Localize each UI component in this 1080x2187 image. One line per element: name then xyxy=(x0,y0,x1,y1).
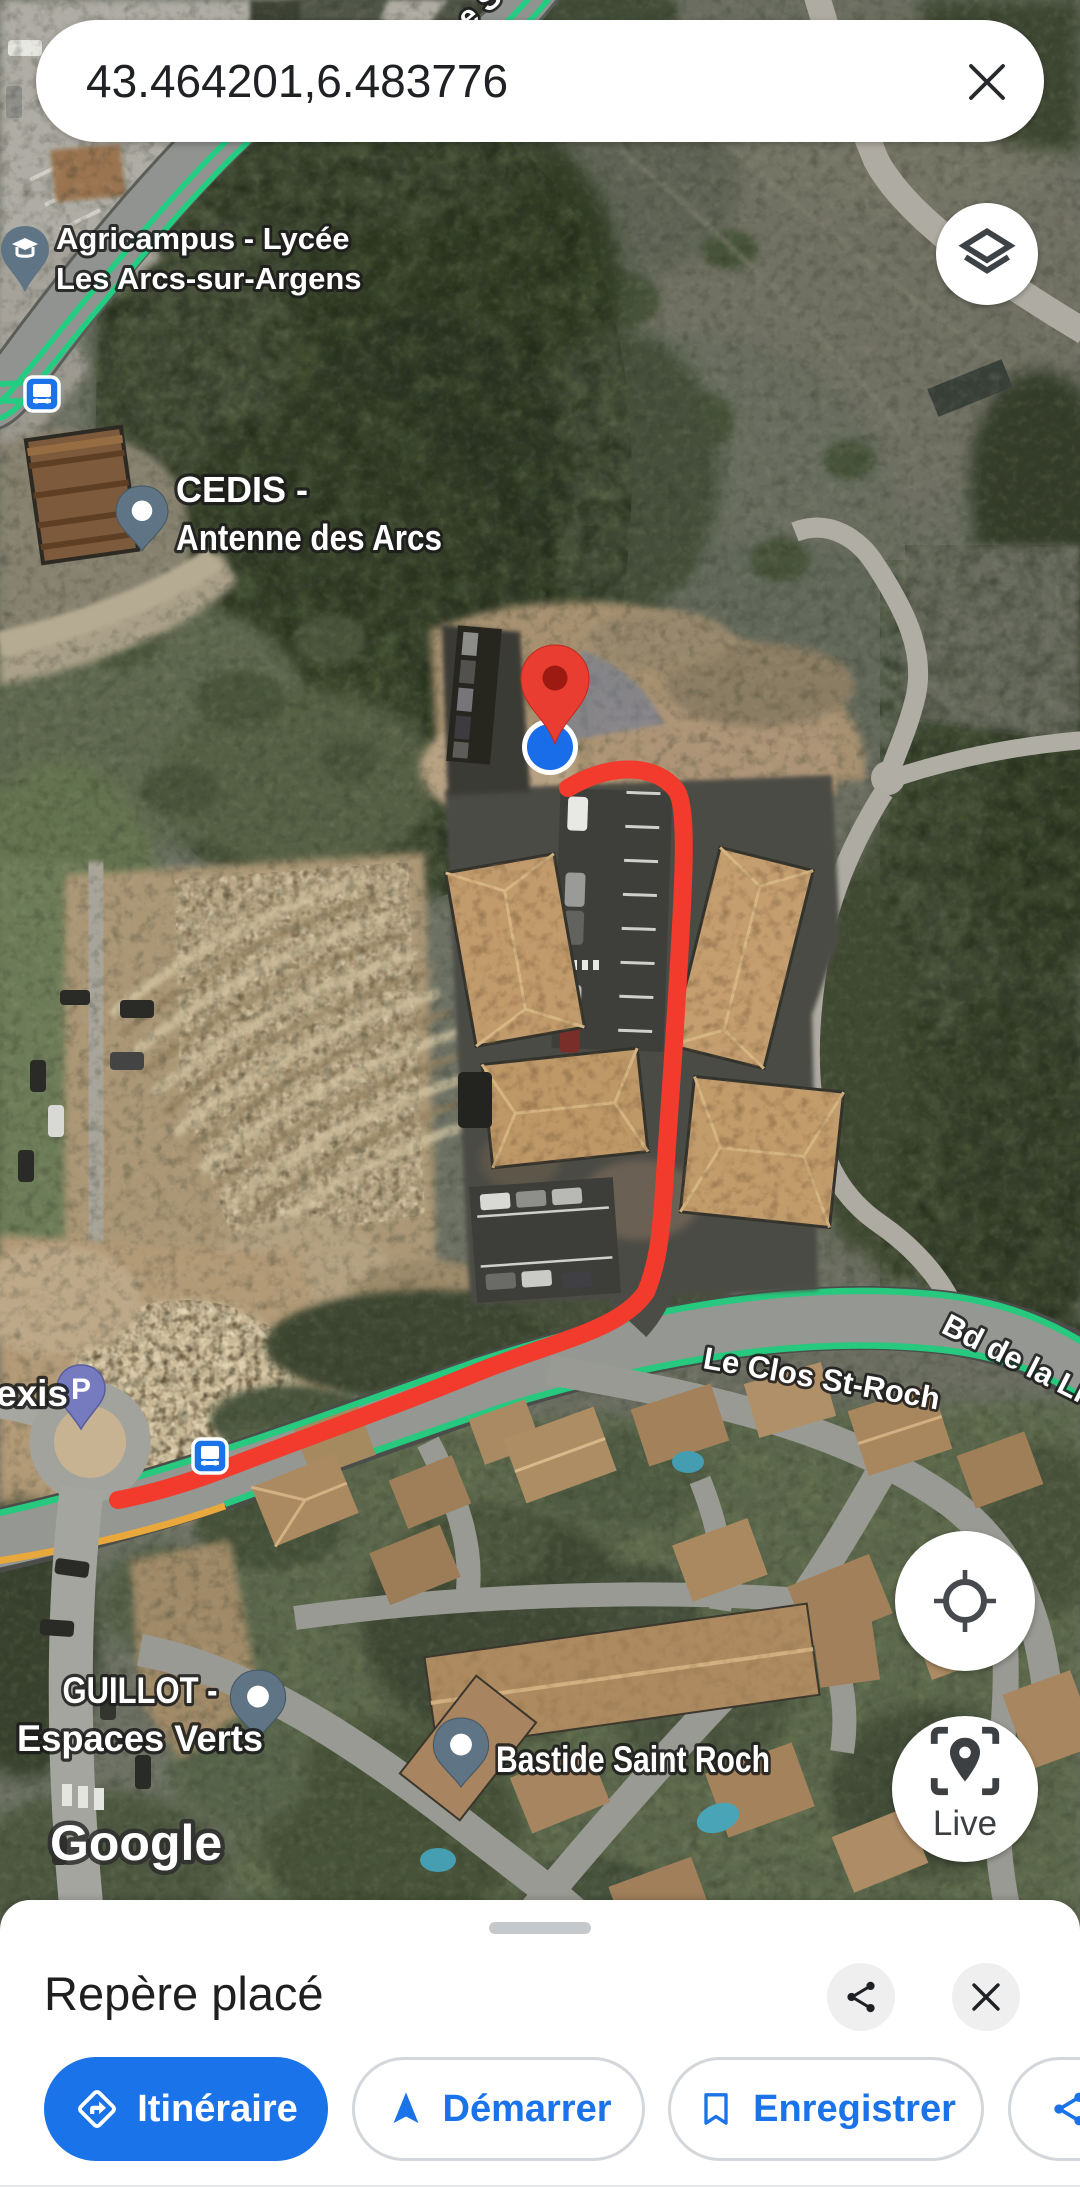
svg-text:Espaces Verts: Espaces Verts xyxy=(17,1718,263,1759)
svg-text:Bastide Saint Roch: Bastide Saint Roch xyxy=(496,1739,770,1780)
svg-text:Agricampus - Lycée: Agricampus - Lycée xyxy=(56,221,349,256)
svg-text:exis: exis xyxy=(0,1373,68,1414)
svg-text:GUILLOT -: GUILLOT - xyxy=(63,1670,218,1711)
svg-text:Google: Google xyxy=(50,1815,222,1871)
svg-text:Antenne des Arcs: Antenne des Arcs xyxy=(176,517,442,558)
svg-text:CEDIS -: CEDIS - xyxy=(176,469,308,510)
svg-text:Les Arcs-sur-Argens: Les Arcs-sur-Argens xyxy=(56,261,362,296)
svg-text:P: P xyxy=(71,1373,91,1406)
